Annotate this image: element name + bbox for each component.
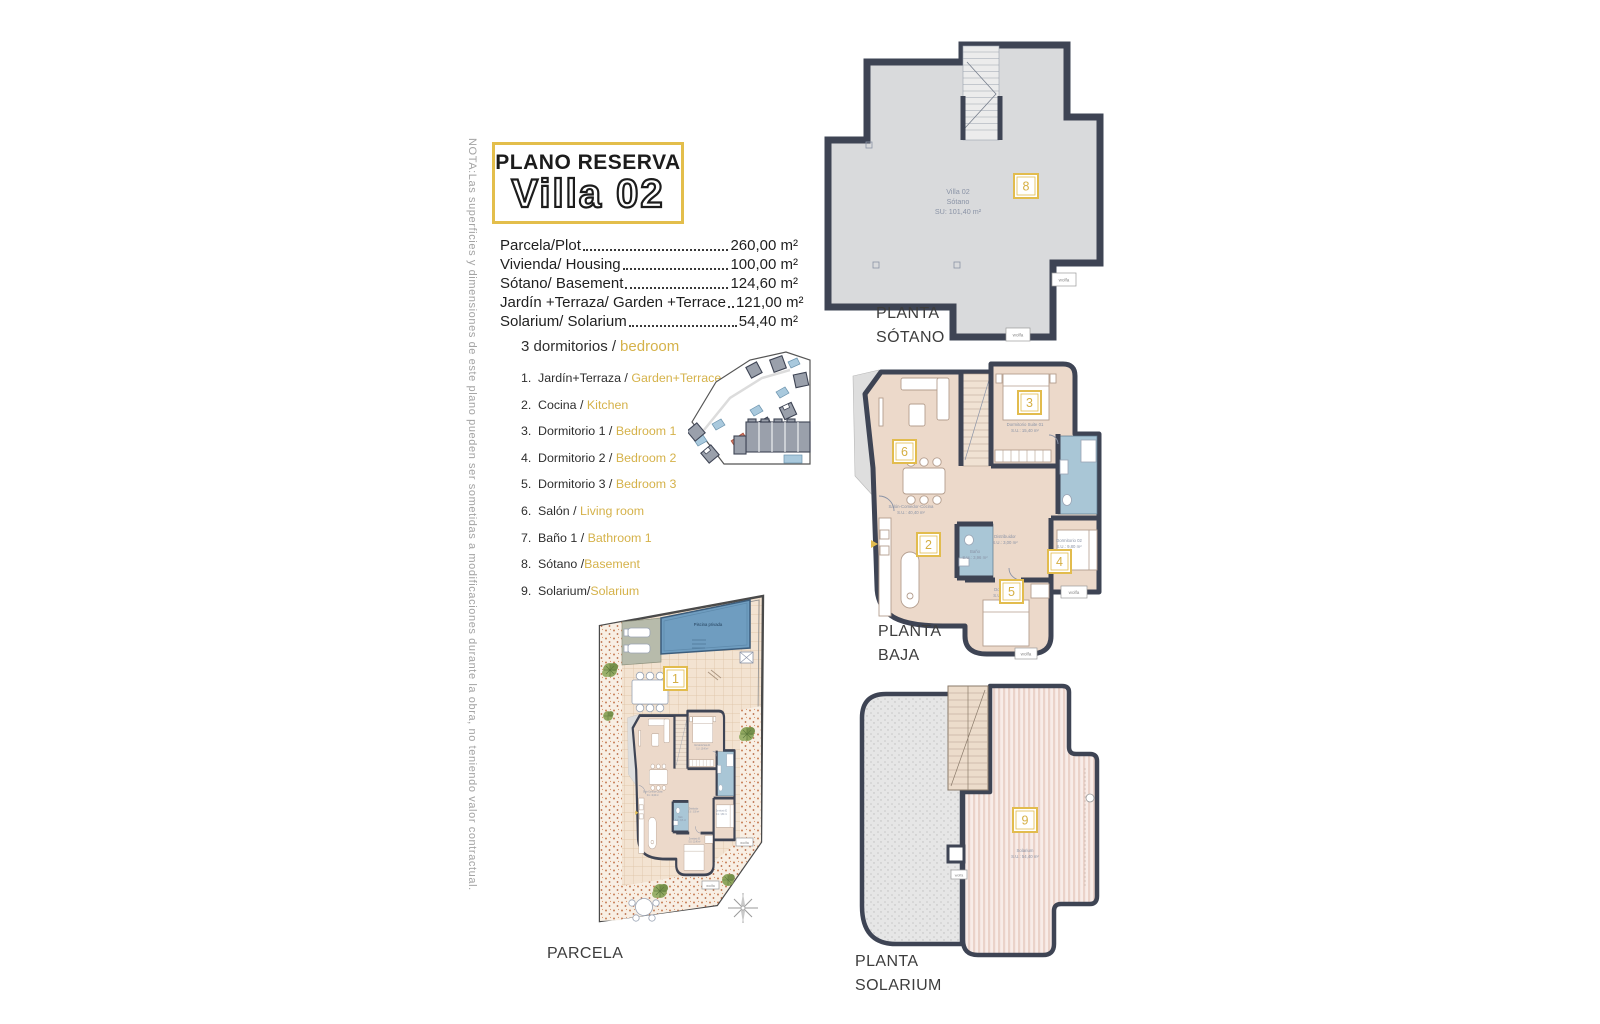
site-villa [793, 372, 808, 387]
svg-text:wolfa: wolfa [955, 874, 963, 878]
staircase [963, 46, 999, 140]
groundfloor-plan-label: PLANTABAJA [878, 620, 941, 668]
brand-watermark: wolfa [736, 838, 753, 846]
svg-text:4: 4 [1056, 555, 1063, 569]
list-item: 6.Salón / Living room [521, 504, 771, 518]
svg-text:8: 8 [1023, 180, 1030, 194]
table-row: Vivienda/ Housing100,00 m² [500, 255, 798, 274]
svg-text:SU: 101,40 m²: SU: 101,40 m² [935, 207, 982, 216]
brand-watermark: wolfa [1015, 648, 1037, 659]
table-row: Solarium/ Solarium54,40 m² [500, 312, 798, 331]
svg-text:Villa 02: Villa 02 [946, 187, 969, 196]
table-row: Parcela/Plot260,00 m² [500, 236, 798, 255]
svg-text:Solarium: Solarium [1017, 848, 1034, 853]
basement-plan-label: PLANTASÓTANO [876, 302, 945, 350]
svg-text:S.U.: 54,40 m²: S.U.: 54,40 m² [1011, 854, 1039, 859]
svg-text:Piscina privada: Piscina privada [694, 622, 723, 627]
list-item: 7.Baño 1 / Bathroom 1 [521, 531, 771, 545]
site-location-plan [688, 348, 813, 468]
svg-text:wolfa: wolfa [1059, 278, 1070, 283]
chimney [948, 846, 964, 862]
svg-text:2: 2 [925, 538, 932, 552]
svg-text:wolfa: wolfa [1021, 652, 1032, 657]
room-badge-kitchen: 2 [917, 533, 940, 556]
table-row: Jardín +Terraza/ Garden +Terrace121,00 m… [500, 293, 798, 312]
solarium-floorplan: wolfa 9 Solarium S.U.: 54,40 m² [848, 676, 1138, 988]
svg-text:3: 3 [1026, 396, 1033, 410]
brand-watermark: wolfa [702, 881, 719, 889]
room-badge-solarium: 9 [1013, 808, 1037, 832]
sun-lounger [628, 644, 650, 653]
svg-text:wolfa: wolfa [706, 884, 714, 888]
svg-text:5: 5 [1008, 585, 1015, 599]
villa-name: Villa 02 [511, 173, 664, 215]
room-badge-bedroom2: 4 [1048, 550, 1071, 573]
list-item: 5.Dormitorio 3 / Bedroom 3 [521, 477, 771, 491]
brand-watermark: wolfa [1061, 586, 1087, 598]
room-badge-basement: 8 [1014, 174, 1038, 198]
groundfloor-floorplan: 6 2 3 4 5 wolfa wolfa [845, 348, 1115, 662]
plan-kicker: PLANO RESERVA [495, 152, 680, 173]
staircase [948, 686, 988, 790]
lower-roof [862, 694, 962, 944]
plot-plan-label: PARCELA [547, 942, 623, 966]
area-table: Parcela/Plot260,00 m² Vivienda/ Housing1… [500, 236, 798, 331]
vertical-disclaimer-note: NOTA:Las superficies y dimensiones de es… [458, 138, 478, 838]
drain-mark [1086, 794, 1094, 802]
brand-watermark: wolfa [951, 870, 967, 879]
basement-floorplan: 8 Villa 02 Sótano SU: 101,40 m² wolfa wo… [812, 36, 1104, 342]
title-box: PLANO RESERVA Villa 02 [492, 142, 684, 224]
room-badge-bedroom3: 5 [1000, 580, 1023, 603]
outdoor-shower [740, 652, 753, 663]
compass-icon [728, 893, 758, 923]
pool-deck [622, 618, 661, 665]
sun-lounger [628, 628, 650, 637]
brand-watermark: wolfa [1006, 328, 1030, 341]
svg-text:wolfa: wolfa [1069, 590, 1080, 595]
svg-text:9: 9 [1022, 814, 1029, 828]
svg-text:1: 1 [672, 672, 679, 686]
outdoor-dining-table [632, 672, 668, 712]
list-item: 8.Sótano /Basement [521, 557, 771, 571]
room-badge-living: 6 [893, 440, 916, 463]
table-row: Sótano/ Basement124,60 m² [500, 274, 798, 293]
room-badge-bedroom1: 3 [1018, 391, 1041, 414]
svg-text:6: 6 [901, 445, 908, 459]
room-badge-garden: 1 [664, 667, 687, 690]
plan-sheet: { "note": "NOTA:Las superficies y dimens… [0, 0, 1600, 1024]
garden-strip [740, 706, 761, 842]
svg-text:wolfa: wolfa [740, 841, 748, 845]
plot-plan: Piscina privada 1 wolfa wolfa [580, 588, 795, 944]
brand-watermark: wolfa [1052, 273, 1076, 286]
svg-text:wolfa: wolfa [1013, 333, 1024, 338]
svg-text:Sótano: Sótano [947, 197, 970, 206]
solarium-plan-label: PLANTASOLARIUM [855, 950, 942, 998]
